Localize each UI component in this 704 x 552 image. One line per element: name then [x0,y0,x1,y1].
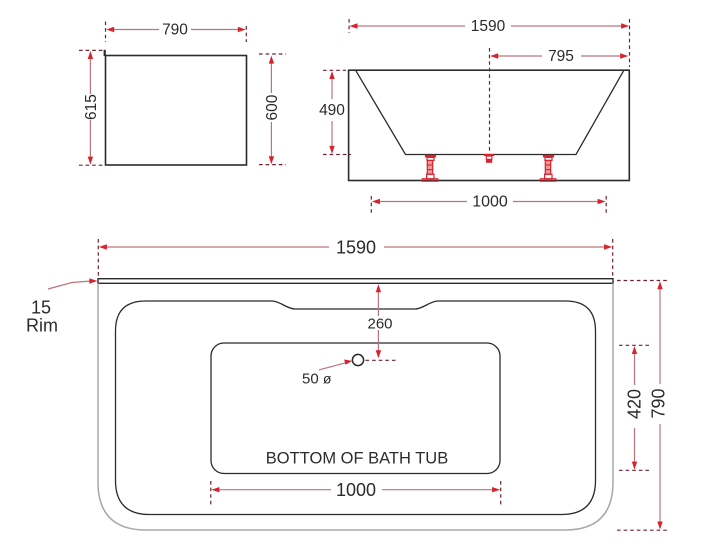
svg-text:260: 260 [367,316,392,333]
svg-text:1590: 1590 [336,238,376,258]
svg-text:Rim: Rim [26,316,58,336]
svg-text:1000: 1000 [336,480,376,500]
svg-text:600: 600 [264,94,281,120]
svg-text:490: 490 [319,102,345,119]
svg-text:50 ø: 50 ø [302,371,332,388]
svg-text:615: 615 [83,94,100,120]
svg-text:795: 795 [548,48,574,65]
svg-text:790: 790 [162,22,188,39]
svg-text:1590: 1590 [471,18,506,35]
svg-text:15: 15 [31,298,51,318]
svg-text:420: 420 [625,389,645,419]
svg-text:1000: 1000 [472,194,508,211]
svg-text:790: 790 [649,388,669,418]
svg-text:BOTTOM OF BATH TUB: BOTTOM OF BATH TUB [266,450,448,468]
